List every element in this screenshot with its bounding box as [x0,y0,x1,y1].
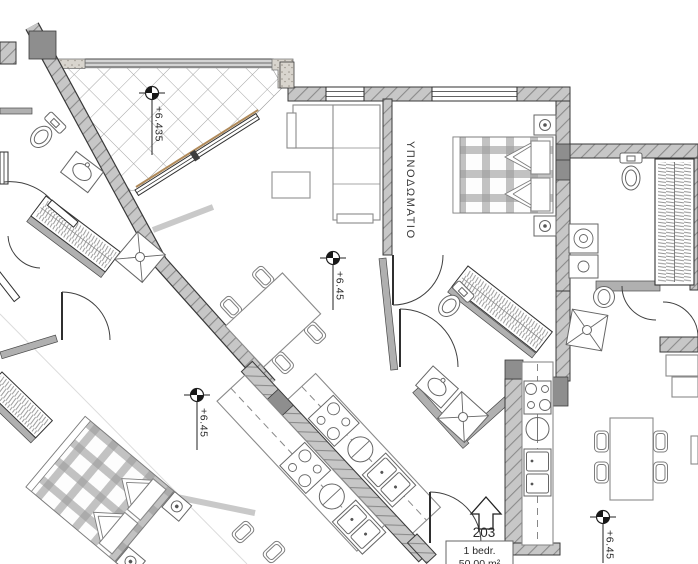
bedroom-west-wall [383,99,392,255]
right-apartment: +6.45 [556,144,698,563]
elevation-value: +6.45 [604,530,616,560]
bedroom-label: ΥΠΝΟΔΩΜΑΤΙΟ [404,141,416,240]
level-symbol-icon [320,252,346,265]
nightstand-lamp [534,216,556,236]
dining-chair [595,431,609,452]
wardrobe-left-lower [0,372,52,443]
right-wall-upper [556,101,570,291]
door-left-bedroom [62,292,110,340]
left-edge-wall [0,42,16,64]
room-door-swing [663,302,698,337]
ceiling-beam [153,207,213,230]
window-top-1 [326,87,364,101]
elevation-value: +6.45 [334,271,346,301]
nightstand-lamp [534,115,556,135]
dining-chair [262,540,287,564]
shower [115,232,166,283]
thin-wall-bedroom [0,335,58,359]
vertical-wall [505,379,522,545]
kitchen-vertical [505,360,560,555]
elevation-value: +6.435 [153,106,165,142]
bathroom-door [400,309,458,367]
corner-sofa [287,105,380,223]
wall-corner-block [29,31,56,59]
floor-plan-page: +6.435 [0,0,698,564]
thin-wall-top [0,108,32,114]
level-symbol-icon [590,511,616,524]
elevation-marker-right-apartment: +6.45 [590,511,616,564]
kitchen-counter-right-apartment [522,362,553,545]
floor-plan-drawing: +6.435 [0,0,698,564]
sofa-right-apartment [666,355,698,397]
elevation-value: +6.45 [198,408,210,438]
washing-machine [569,224,598,278]
dining-table [610,418,653,500]
right-apt-corner-block [556,144,570,160]
elevation-marker-living: +6.45 [320,252,346,311]
door-left-2 [0,236,40,302]
wardrobe-right-apartment [655,159,694,285]
unit-area: 50.00 m² [459,558,501,564]
bedroom-door [393,255,443,305]
elevation-marker-left-apartment: +6.45 [184,389,210,451]
wardrobe-203 [448,266,553,358]
dining-chair [595,462,609,483]
coffee-table [272,172,310,198]
toilet [620,153,642,190]
unit-info-box: 1 bedr. 50.00 m² [446,541,513,564]
dining-chair [654,431,668,452]
toilet [25,111,67,153]
dining-table-203 [211,258,334,382]
bathroom-wall-west [379,258,398,370]
window-top-2 [432,87,517,101]
wall-top-left-column [280,62,294,88]
wardrobe-left-upper [27,196,121,278]
double-sink [524,449,551,496]
dining-chair [654,462,668,483]
dining-set-right-apartment [595,418,698,500]
unit-type: 1 bedr. [463,545,495,557]
shower [566,309,608,351]
double-bed-left [26,416,192,564]
level-symbol-icon [184,389,210,402]
kitchen-wall [241,361,429,561]
window-left-edge [0,152,8,184]
right-apt-lower-wall [660,337,698,352]
dining-chair [231,520,256,545]
vertical-wall-cap [505,360,523,379]
side-chair [691,436,698,464]
double-bed [453,137,553,213]
unit-number: 203 [473,525,496,540]
pedestal-sink [594,287,615,308]
